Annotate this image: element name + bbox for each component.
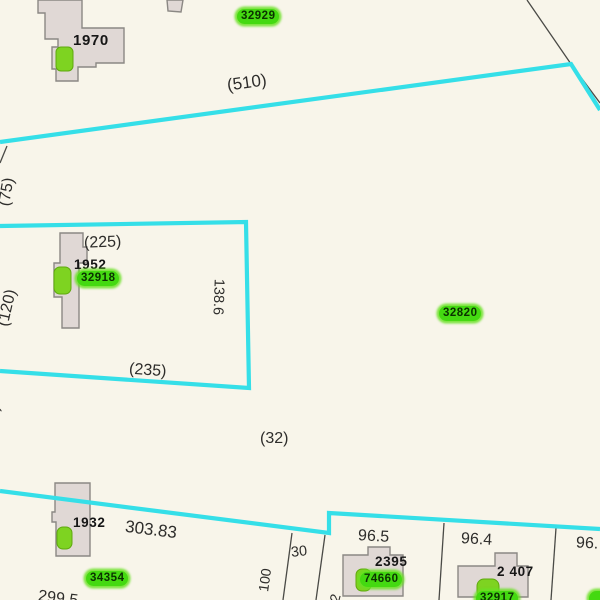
building-top-small-footprint bbox=[167, 0, 183, 12]
parcel-id-pill-32929[interactable]: 32929 bbox=[237, 9, 279, 24]
parcel-id-pill-34354[interactable]: 34354 bbox=[86, 571, 128, 586]
dimension-label-32: (32) bbox=[260, 430, 288, 448]
dimension-label-96-right-partial: 96. bbox=[576, 534, 599, 553]
dimension-label-96-5: 96.5 bbox=[358, 527, 390, 547]
building-number-1932: 1932 bbox=[73, 515, 105, 530]
building-number-1952: 1952 bbox=[74, 257, 106, 272]
map-feature-layer bbox=[0, 0, 600, 600]
building-number-2395: 2395 bbox=[375, 554, 407, 569]
parcel-id-pill-partial-right[interactable] bbox=[589, 591, 600, 600]
lot-line-strip-right bbox=[316, 535, 325, 600]
dimension-label-138-6: 138.6 bbox=[210, 279, 227, 316]
tree-marker-1952 bbox=[54, 267, 71, 294]
lot-line-mid bbox=[439, 523, 444, 600]
tree-marker-1970 bbox=[56, 47, 73, 71]
parcel-id-pill-32917[interactable]: 32917 bbox=[476, 591, 518, 600]
parcel-id-pill-74660[interactable]: 74660 bbox=[360, 572, 402, 587]
dimension-label-96-4: 96.4 bbox=[461, 530, 493, 550]
dimension-label-30: 30 bbox=[290, 543, 308, 561]
lot-line-left-short bbox=[0, 146, 7, 163]
dimension-label-225: (225) bbox=[84, 233, 122, 252]
dimension-label-235: (235) bbox=[128, 361, 167, 382]
building-number-2407: 2 407 bbox=[497, 564, 534, 579]
building-number-1970: 1970 bbox=[73, 32, 109, 49]
parcel-id-pill-32820[interactable]: 32820 bbox=[439, 306, 481, 321]
parcel-id-pill-32918[interactable]: 32918 bbox=[77, 271, 119, 286]
lot-line-right bbox=[551, 528, 556, 600]
tree-marker-1932 bbox=[57, 527, 72, 549]
lot-line-strip-left bbox=[283, 533, 292, 600]
lot-line-topright bbox=[527, 0, 600, 103]
parcel-map-canvas[interactable]: (510) (75) (225) (120) 138.6 (235) (32) … bbox=[0, 0, 600, 600]
parcel-boundary-road-510 bbox=[0, 64, 600, 142]
dimension-label-100: 100 bbox=[255, 567, 274, 592]
